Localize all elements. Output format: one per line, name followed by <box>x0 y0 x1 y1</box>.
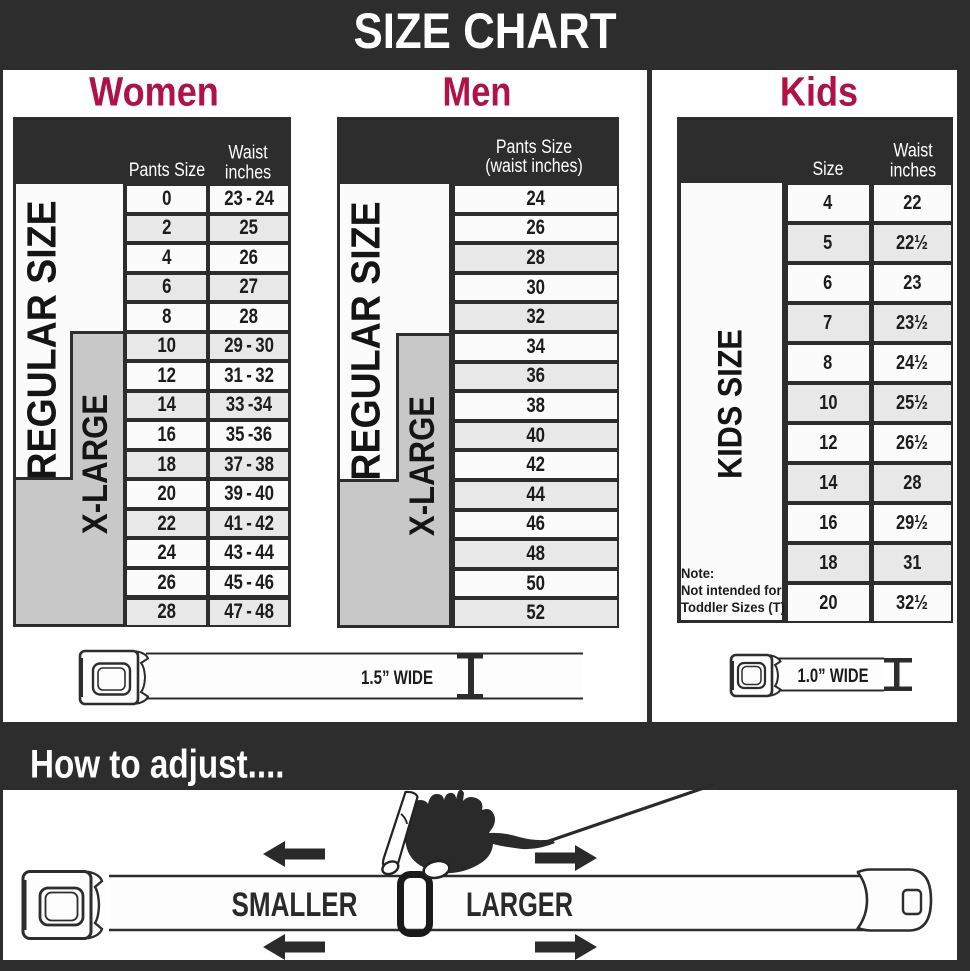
svg-text:SMALLER: SMALLER <box>232 886 358 924</box>
svg-text:1.0” WIDE: 1.0” WIDE <box>798 666 869 687</box>
svg-text:1.5” WIDE: 1.5” WIDE <box>361 668 433 689</box>
svg-text:LARGER: LARGER <box>466 886 573 924</box>
